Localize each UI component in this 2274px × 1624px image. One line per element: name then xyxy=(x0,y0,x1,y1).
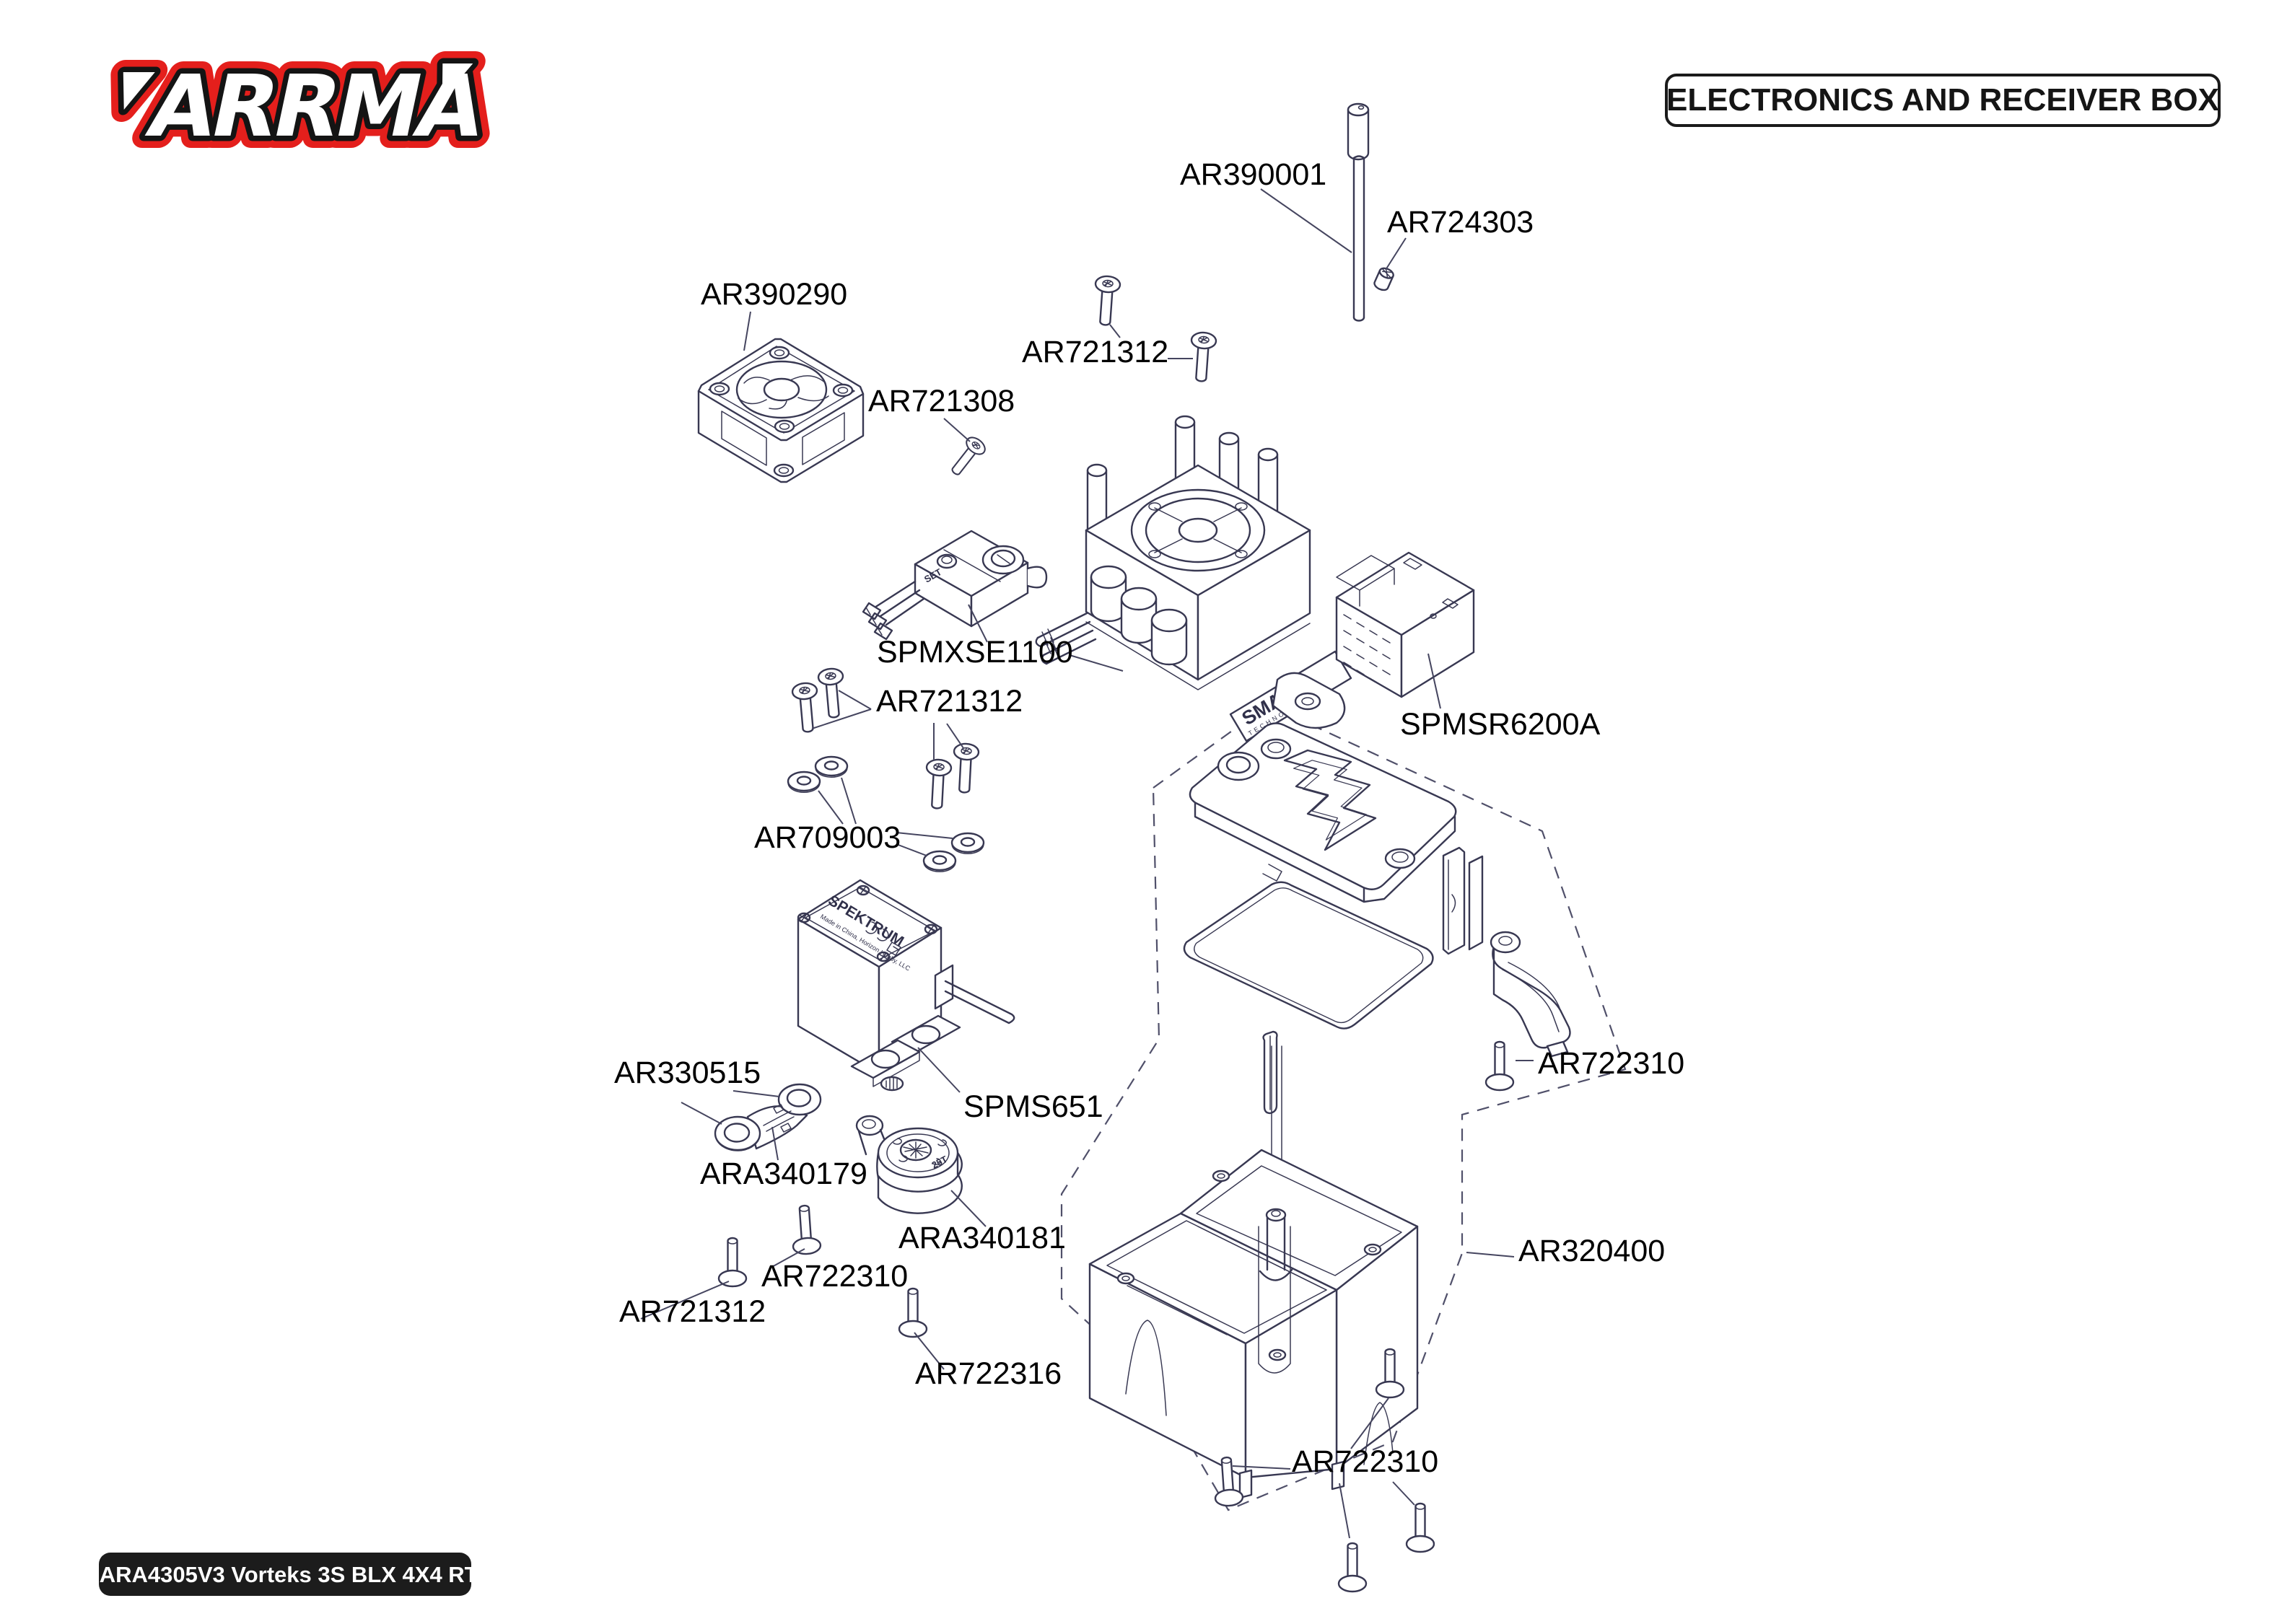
part-label-ar721312-mid: AR721312 xyxy=(876,684,1023,719)
svg-text:ARRMA: ARRMA xyxy=(140,57,494,156)
part-label-ar722310-right: AR722310 xyxy=(1538,1046,1684,1081)
receiver-box-lid-drawing xyxy=(1190,724,1456,903)
servo-drawing: SPEKTRUM Made in China, Horizon Hobby, L… xyxy=(798,880,1014,1090)
washer-ar709003-2 xyxy=(815,757,847,777)
part-label-ar722310-bottom: AR722310 xyxy=(1292,1444,1438,1479)
leader-line xyxy=(1386,238,1406,270)
leader-line xyxy=(812,709,871,729)
kit-code-text: C-ARA4305V3 Vorteks 3S BLX 4X4 RTR xyxy=(76,1562,494,1587)
receiver-box-gasket-drawing xyxy=(1184,882,1433,1029)
screw-ar721312-b4 xyxy=(952,743,979,793)
receiver-box-latch-drawing xyxy=(1491,932,1570,1056)
part-label-spms651: SPMS651 xyxy=(963,1089,1103,1124)
antenna-holder-pin-drawing xyxy=(1264,1032,1277,1113)
part-label-ar320400: AR320400 xyxy=(1518,1234,1665,1268)
leader-line xyxy=(1466,1252,1514,1257)
leader-line xyxy=(841,778,856,824)
part-label-ara340179: ARA340179 xyxy=(700,1156,867,1191)
part-label-ar721312-top: AR721312 xyxy=(1022,335,1168,369)
washer-ar709003-4 xyxy=(924,851,955,872)
part-label-ar722316: AR722316 xyxy=(915,1356,1062,1391)
part-label-ar390290: AR390290 xyxy=(701,277,847,312)
leader-line xyxy=(947,724,963,748)
part-label-spmsr6200a: SPMSR6200A xyxy=(1400,707,1601,742)
leader-line xyxy=(1393,1482,1414,1505)
page-title: ELECTRONICS AND RECEIVER BOX xyxy=(1666,82,2219,118)
leader-line xyxy=(681,1102,722,1124)
screw-ar721312-a2 xyxy=(1189,332,1217,382)
part-label-ar721308: AR721308 xyxy=(868,384,1015,418)
part-label-ar330515: AR330515 xyxy=(614,1055,761,1090)
screw-ar722310-r xyxy=(1486,1042,1513,1090)
leader-line xyxy=(896,844,927,856)
screw-ar722310-s3 xyxy=(1339,1543,1366,1592)
leader-line xyxy=(744,312,751,351)
leader-line xyxy=(918,1048,960,1092)
screw-ar721308 xyxy=(946,434,988,480)
part-label-ara340181: ARA340181 xyxy=(898,1221,1066,1255)
receiver-box-clip-drawing xyxy=(1443,848,1482,954)
fan-drawing xyxy=(699,339,863,482)
part-label-spmxse1100: SPMXSE1100 xyxy=(877,635,1073,670)
kit-code-badge: C-ARA4305V3 Vorteks 3S BLX 4X4 RTR xyxy=(76,1553,494,1596)
page-title-box: ELECTRONICS AND RECEIVER BOX xyxy=(1666,75,2219,126)
screw-ar722310-s4 xyxy=(1407,1504,1434,1552)
leader-line xyxy=(896,833,953,838)
leader-line xyxy=(818,791,843,824)
part-label-ar390001: AR390001 xyxy=(1180,157,1326,192)
steering-link-drawing xyxy=(715,1084,821,1151)
washer-ar709003-3 xyxy=(952,833,984,853)
leader-line xyxy=(1339,1483,1350,1538)
leader-line xyxy=(1261,189,1352,253)
leader-line xyxy=(733,1091,779,1097)
switch-drawing: SET xyxy=(863,531,1046,639)
part-label-ar722310-left: AR722310 xyxy=(761,1259,908,1294)
arrma-logo-white-layer: ARRMA xyxy=(105,57,494,156)
leader-line xyxy=(944,418,970,442)
part-label-ar721312-bottom: AR721312 xyxy=(619,1294,766,1329)
arrma-logo: ARRMA ARRMA ARRMA xyxy=(105,57,494,156)
diagram-canvas: SMART TECHNOLOGY SET xyxy=(0,0,2274,1624)
part-label-ar724303: AR724303 xyxy=(1387,205,1534,240)
screw-ar721312-b3 xyxy=(924,759,951,809)
washer-ar709003-1 xyxy=(788,772,820,792)
servo-saver-drawing: 25T xyxy=(857,1116,962,1213)
screw-ar721312-b1 xyxy=(792,682,821,733)
esc-drawing: SMART TECHNOLOGY xyxy=(1036,416,1351,741)
screw-ar722310-l xyxy=(790,1205,821,1255)
receiver-drawing xyxy=(1337,553,1474,697)
antenna-tube-drawing xyxy=(1348,104,1368,321)
antenna-cap-drawing xyxy=(1373,266,1394,292)
screw-ar721312-c xyxy=(719,1238,746,1286)
receiver-box-bottom-drawing xyxy=(1090,1046,1417,1498)
leader-line xyxy=(1070,655,1123,671)
leader-line xyxy=(839,690,871,709)
screw-ar721312-a1 xyxy=(1093,276,1121,326)
screw-ar722316 xyxy=(899,1289,927,1337)
part-label-ar709003: AR709003 xyxy=(754,820,901,855)
